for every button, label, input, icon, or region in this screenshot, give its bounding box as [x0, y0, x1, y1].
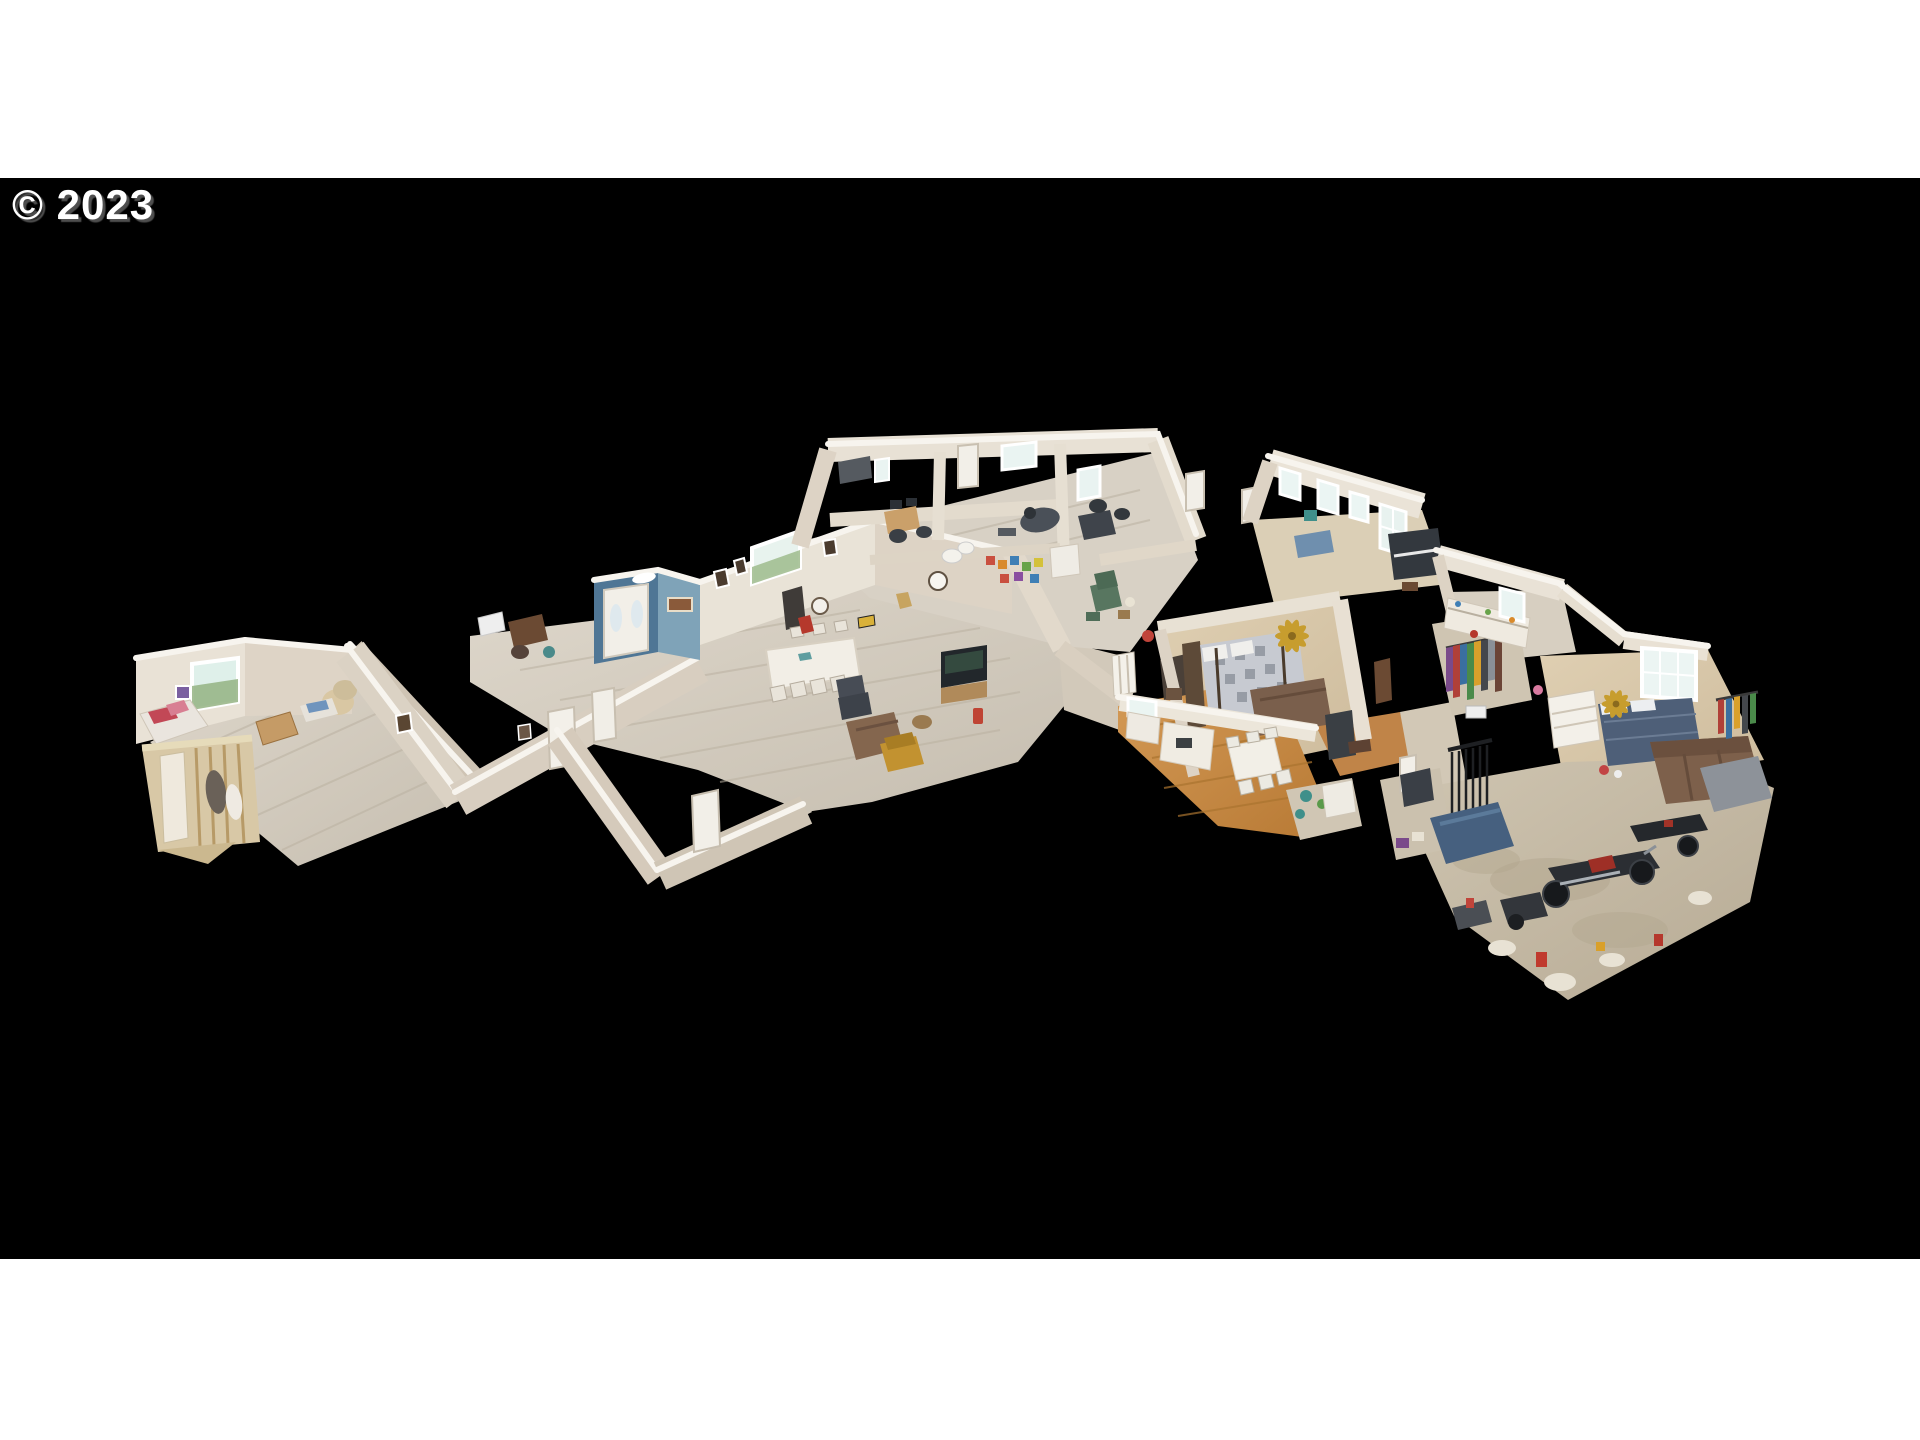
dollhouse-image: [0, 0, 1920, 1440]
copyright-text: © 2023: [12, 181, 154, 228]
room-left-closet: [142, 738, 260, 864]
screenshot-root: © 2023: [0, 0, 1920, 1440]
copyright-watermark: © 2023: [12, 184, 154, 226]
dollhouse-3d-view: [136, 434, 1774, 1000]
entry-foyer-blue: [594, 570, 700, 664]
